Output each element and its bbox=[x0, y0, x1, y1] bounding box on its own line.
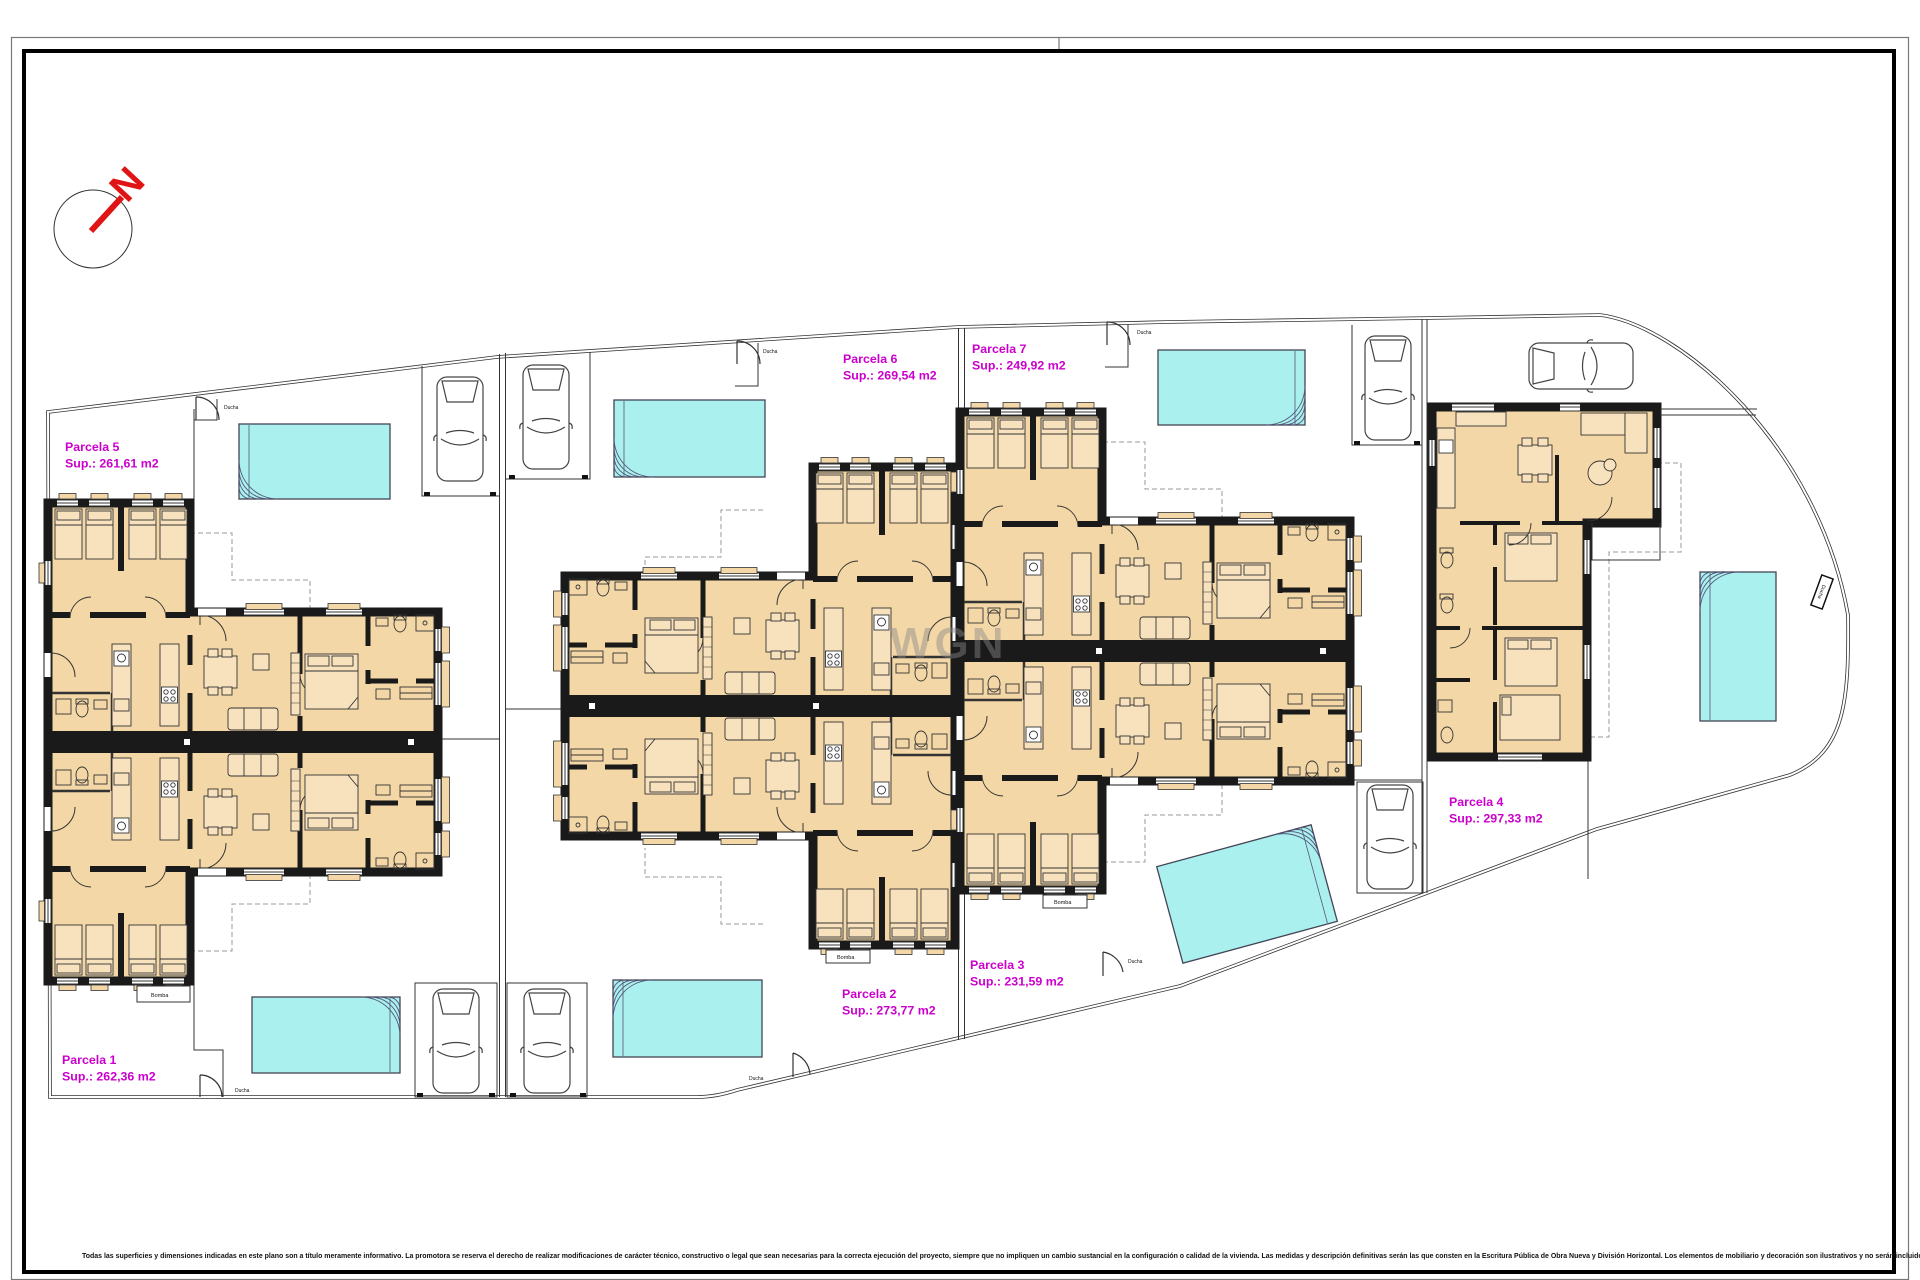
svg-text:Sup.: 231,59 m2: Sup.: 231,59 m2 bbox=[970, 975, 1064, 989]
svg-text:Sup.: 269,54 m2: Sup.: 269,54 m2 bbox=[843, 369, 937, 383]
svg-text:Bomba: Bomba bbox=[837, 955, 855, 961]
svg-text:Sup.: 249,92 m2: Sup.: 249,92 m2 bbox=[972, 359, 1066, 373]
svg-text:Ducha: Ducha bbox=[235, 1088, 250, 1094]
svg-text:Parcela 7: Parcela 7 bbox=[972, 342, 1027, 356]
svg-text:Parcela 1: Parcela 1 bbox=[62, 1053, 117, 1067]
svg-text:Ducha: Ducha bbox=[749, 1076, 764, 1082]
svg-text:Sup.: 297,33 m2: Sup.: 297,33 m2 bbox=[1449, 812, 1543, 826]
svg-text:Bomba: Bomba bbox=[1054, 900, 1072, 906]
svg-text:Ducha: Ducha bbox=[224, 405, 239, 411]
svg-text:Ducha: Ducha bbox=[763, 349, 778, 355]
svg-text:Parcela 3: Parcela 3 bbox=[970, 958, 1025, 972]
svg-text:WGN: WGN bbox=[890, 619, 1007, 668]
svg-text:Parcela 4: Parcela 4 bbox=[1449, 795, 1504, 809]
svg-text:Sup.: 262,36 m2: Sup.: 262,36 m2 bbox=[62, 1070, 156, 1084]
svg-text:Parcela 6: Parcela 6 bbox=[843, 352, 898, 366]
svg-text:Parcela 2: Parcela 2 bbox=[842, 987, 897, 1001]
svg-text:Ducha: Ducha bbox=[1128, 959, 1143, 965]
svg-text:Todas las superficies y dimens: Todas las superficies y dimensiones indi… bbox=[82, 1253, 1920, 1260]
svg-text:Sup.: 261,61 m2: Sup.: 261,61 m2 bbox=[65, 457, 159, 471]
svg-text:Ducha: Ducha bbox=[1137, 330, 1152, 336]
svg-text:Bomba: Bomba bbox=[151, 993, 169, 999]
svg-text:Parcela 5: Parcela 5 bbox=[65, 440, 120, 454]
svg-text:Sup.: 273,77 m2: Sup.: 273,77 m2 bbox=[842, 1004, 936, 1018]
